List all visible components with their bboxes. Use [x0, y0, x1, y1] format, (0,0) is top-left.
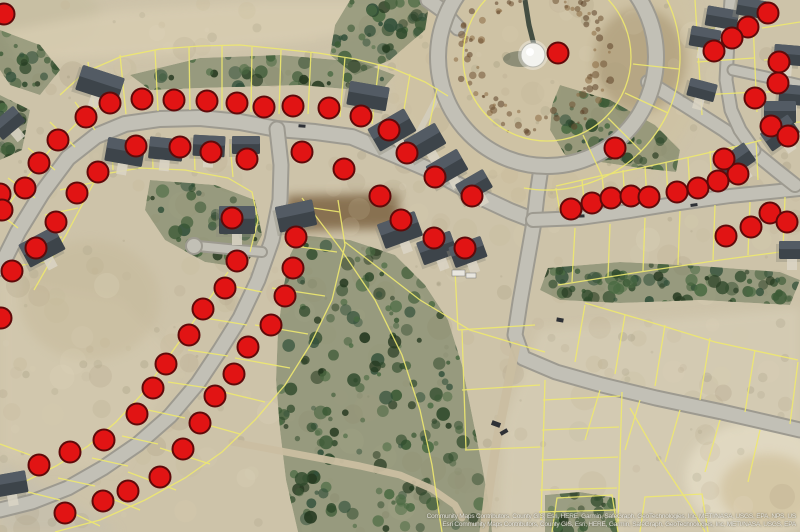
lot-marker[interactable] — [29, 153, 50, 174]
lot-marker[interactable] — [254, 97, 275, 118]
map-viewport[interactable]: Community Maps Contributors, County GIS,… — [0, 0, 800, 532]
lot-marker[interactable] — [283, 96, 304, 117]
lot-marker[interactable] — [237, 149, 258, 170]
lot-marker[interactable] — [156, 354, 177, 375]
lot-marker[interactable] — [193, 299, 214, 320]
lot-marker[interactable] — [205, 386, 226, 407]
lot-marker[interactable] — [351, 106, 372, 127]
lot-marker[interactable] — [29, 455, 50, 476]
lot-marker[interactable] — [319, 98, 340, 119]
lot-marker[interactable] — [179, 325, 200, 346]
lot-marker[interactable] — [15, 178, 36, 199]
lot-marker[interactable] — [197, 91, 218, 112]
lot-marker[interactable] — [292, 142, 313, 163]
lot-marker[interactable] — [370, 186, 391, 207]
lot-marker[interactable] — [261, 315, 282, 336]
lot-marker[interactable] — [462, 186, 483, 207]
lot-marker[interactable] — [722, 28, 743, 49]
lot-marker[interactable] — [741, 217, 762, 238]
lot-marker[interactable] — [286, 227, 307, 248]
lot-marker[interactable] — [391, 210, 412, 231]
lot-marker[interactable] — [704, 41, 725, 62]
lot-marker[interactable] — [190, 413, 211, 434]
lot-marker[interactable] — [379, 120, 400, 141]
lot-marker[interactable] — [127, 404, 148, 425]
lot-marker[interactable] — [143, 378, 164, 399]
lot-marker[interactable] — [758, 3, 779, 24]
lot-marker[interactable] — [227, 251, 248, 272]
lot-marker[interactable] — [0, 4, 15, 25]
lot-marker[interactable] — [768, 73, 789, 94]
lot-marker[interactable] — [548, 43, 569, 64]
lot-marker[interactable] — [94, 430, 115, 451]
lot-marker[interactable] — [0, 308, 12, 329]
lot-marker[interactable] — [222, 208, 243, 229]
lot-marker[interactable] — [745, 88, 766, 109]
lot-marker[interactable] — [132, 89, 153, 110]
lot-marker[interactable] — [55, 503, 76, 524]
lot-marker[interactable] — [716, 226, 737, 247]
lot-marker[interactable] — [93, 491, 114, 512]
lot-marker[interactable] — [170, 137, 191, 158]
lot-marker[interactable] — [173, 439, 194, 460]
map-canvas[interactable] — [0, 0, 800, 532]
lot-marker[interactable] — [582, 193, 603, 214]
lot-marker[interactable] — [2, 261, 23, 282]
lot-marker[interactable] — [561, 199, 582, 220]
lot-marker[interactable] — [26, 238, 47, 259]
lot-marker[interactable] — [397, 143, 418, 164]
lot-marker[interactable] — [425, 167, 446, 188]
lot-marker[interactable] — [164, 90, 185, 111]
lot-marker[interactable] — [424, 228, 445, 249]
lot-marker[interactable] — [100, 93, 121, 114]
lot-marker[interactable] — [215, 278, 236, 299]
lot-marker[interactable] — [76, 107, 97, 128]
lot-marker[interactable] — [60, 442, 81, 463]
lot-marker[interactable] — [46, 212, 67, 233]
lot-marker[interactable] — [769, 52, 790, 73]
lot-marker[interactable] — [227, 93, 248, 114]
lot-marker[interactable] — [67, 183, 88, 204]
lot-marker[interactable] — [0, 200, 13, 221]
lot-marker[interactable] — [48, 130, 69, 151]
lot-marker[interactable] — [601, 188, 622, 209]
lot-marker[interactable] — [688, 178, 709, 199]
lot-marker[interactable] — [201, 142, 222, 163]
lot-marker[interactable] — [88, 162, 109, 183]
lot-marker[interactable] — [238, 337, 259, 358]
lot-marker[interactable] — [778, 126, 799, 147]
lot-marker[interactable] — [118, 481, 139, 502]
lot-marker[interactable] — [126, 136, 147, 157]
lot-marker[interactable] — [708, 171, 729, 192]
lot-marker[interactable] — [224, 364, 245, 385]
lot-marker[interactable] — [714, 149, 735, 170]
lot-marker[interactable] — [334, 159, 355, 180]
lot-marker[interactable] — [455, 238, 476, 259]
lot-marker[interactable] — [667, 182, 688, 203]
lot-marker[interactable] — [283, 258, 304, 279]
lot-marker[interactable] — [150, 467, 171, 488]
lot-marker[interactable] — [275, 286, 296, 307]
lot-marker[interactable] — [605, 138, 626, 159]
lot-marker[interactable] — [777, 212, 798, 233]
lot-marker[interactable] — [639, 187, 660, 208]
